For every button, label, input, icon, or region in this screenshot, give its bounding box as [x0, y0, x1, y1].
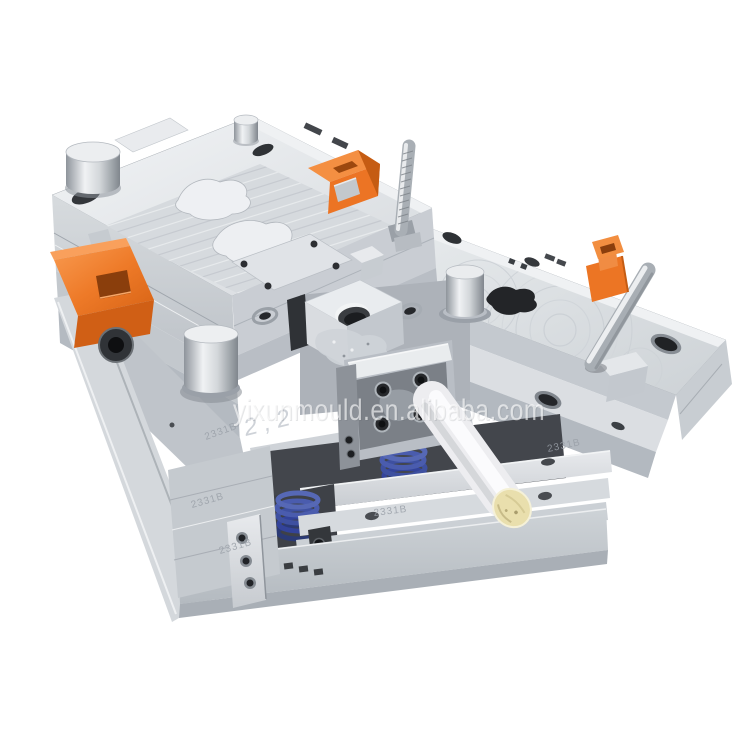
edge-slot	[331, 137, 348, 149]
guide-pin-large-center	[439, 265, 491, 323]
guide-pin-small-left	[65, 142, 121, 198]
watermark-text: yixunmould.en.alibaba.com	[233, 394, 545, 427]
watermark: yixunmould.en.alibaba.com yixunmould.en.…	[233, 394, 546, 428]
edge-slot	[299, 565, 309, 572]
product-photo-canvas: 2331B 2331B 2331B 2331B 2331B 2 , 2 yixu…	[0, 0, 750, 750]
pin-hole	[170, 423, 175, 428]
edge-slot	[556, 259, 566, 267]
mold-product-photo: 2331B 2331B 2331B 2331B 2331B 2 , 2 yixu…	[0, 0, 750, 750]
clamp-bolt	[99, 328, 133, 362]
edge-slot	[544, 253, 555, 261]
edge-slot	[304, 122, 323, 135]
orange-clamp-right	[586, 235, 628, 302]
edge-slot	[314, 568, 324, 575]
edge-slot	[284, 562, 294, 569]
guide-pin-small-top	[233, 115, 259, 146]
guide-pin-large-left	[180, 325, 242, 403]
support-leg	[227, 514, 266, 608]
